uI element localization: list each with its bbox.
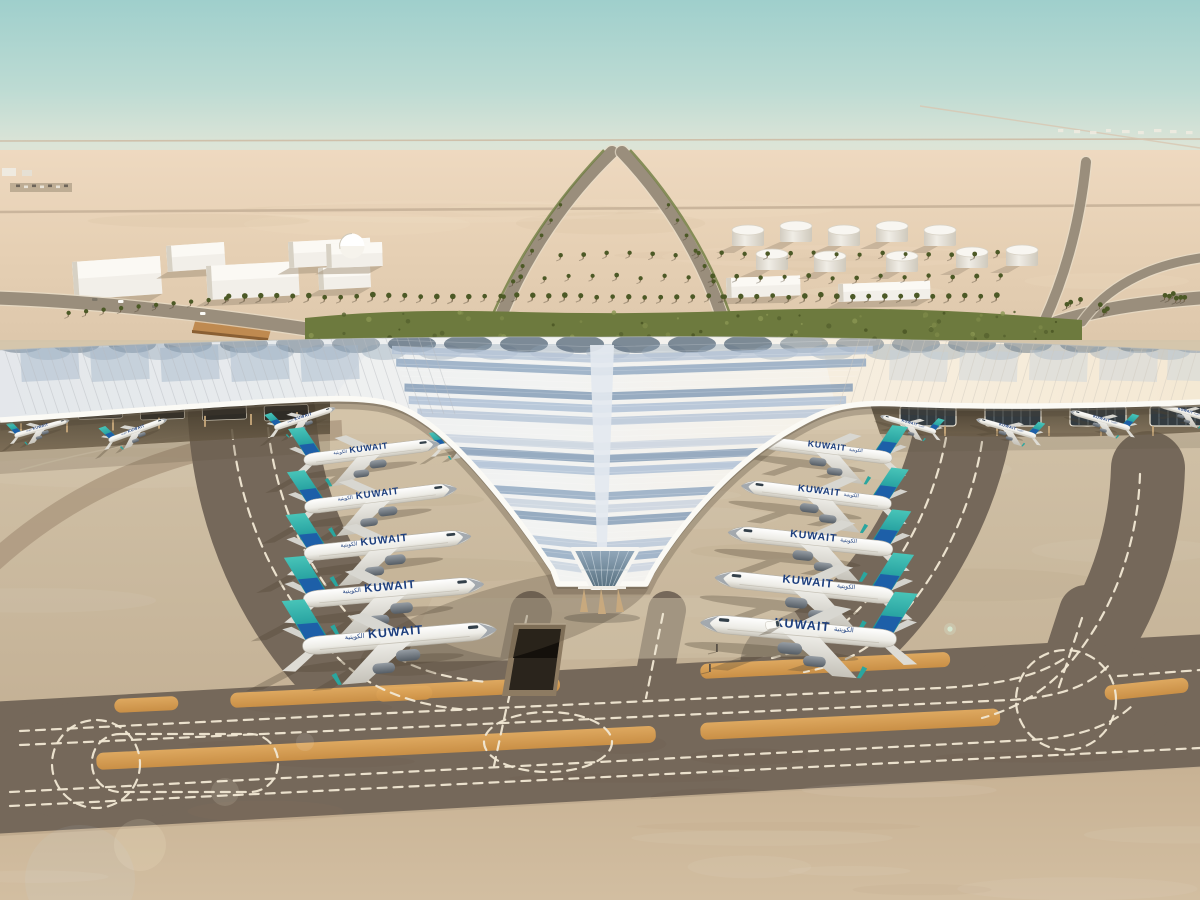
airport-aerial-rendering: KUWAIT الكويتية KUWAIT الكويتية KU: [0, 0, 1200, 900]
rendering-canvas: KUWAIT الكويتية KUWAIT الكويتية KU: [0, 0, 1200, 900]
